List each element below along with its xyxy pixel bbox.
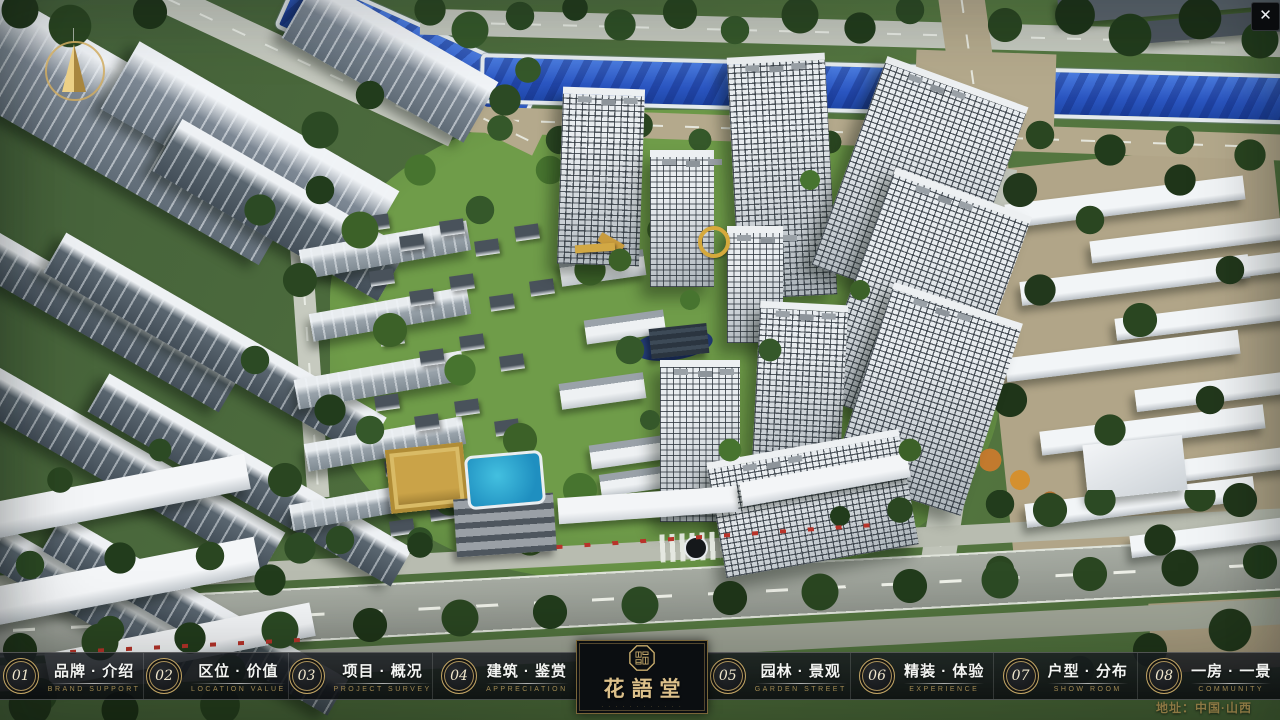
- menu-divider: [904, 683, 984, 684]
- menu-number: 01: [12, 668, 30, 684]
- menu-label-en: APPRECIATION: [486, 686, 568, 693]
- white-building-block: [1082, 435, 1187, 500]
- menu-group-right: 05 园林 · 景观GARDEN STREET 06 精装 · 体验EXPERI…: [707, 653, 1280, 699]
- menu-label-cn: 精装 · 体验: [904, 660, 984, 681]
- residential-tower: [650, 150, 714, 287]
- menu-number-badge: 05: [710, 658, 746, 694]
- menu-item-location-value[interactable]: 02 区位 · 价值LOCATION VALUE: [144, 653, 288, 699]
- compass-arrow-icon: [62, 44, 74, 92]
- close-button[interactable]: ✕: [1251, 2, 1280, 31]
- menu-number-badge: 04: [441, 658, 477, 694]
- menu-label-en: SHOW ROOM: [1054, 686, 1122, 693]
- menu-number: 04: [450, 668, 468, 684]
- menu-number-badge: 07: [1003, 658, 1039, 694]
- menu-label-en: LOCATION VALUE: [191, 686, 286, 693]
- project-name: 花語堂: [604, 673, 688, 703]
- menu-number-badge: 08: [1146, 658, 1182, 694]
- menu-number: 03: [298, 668, 316, 684]
- menu-item-interior-experience[interactable]: 06 精装 · 体验EXPERIENCE: [851, 653, 995, 699]
- menu-label-cn: 一房 · 一景: [1191, 660, 1271, 681]
- menu-label-en: COMMUNITY: [1198, 686, 1264, 693]
- menu-number-badge: 06: [859, 658, 895, 694]
- close-icon: ✕: [1259, 7, 1272, 24]
- menu-label-cn: 户型 · 分布: [1048, 660, 1128, 681]
- seal-icon: [629, 645, 655, 671]
- menu-item-unit-distribution[interactable]: 07 户型 · 分布SHOW ROOM: [994, 653, 1138, 699]
- menu-label-cn: 园林 · 景观: [761, 660, 841, 681]
- menu-group-left: 01 品牌 · 介绍BRAND SUPPORT 02 区位 · 价值LOCATI…: [0, 653, 577, 699]
- menu-divider: [486, 683, 568, 684]
- compass-stem: [73, 28, 74, 42]
- aerial-masterplan-view[interactable]: [0, 0, 1280, 720]
- menu-number-badge: 02: [146, 658, 182, 694]
- menu-divider: [1191, 683, 1271, 684]
- menu-item-garden-landscape[interactable]: 05 园林 · 景观GARDEN STREET: [707, 653, 851, 699]
- compass-arrow-icon: [74, 44, 86, 92]
- menu-item-room-view[interactable]: 08 一房 · 一景COMMUNITY: [1138, 653, 1280, 699]
- menu-divider: [191, 683, 286, 684]
- menu-label-cn: 建筑 · 鉴赏: [487, 660, 567, 681]
- menu-number-badge: 01: [3, 658, 39, 694]
- clubhouse-roof: [649, 323, 710, 359]
- menu-item-project-survey[interactable]: 03 项目 · 概况PROJECT SURVEY: [289, 653, 433, 699]
- project-address: 地址：中国·山西: [1156, 699, 1252, 716]
- presentation-window: ✕ 01 品牌 · 介绍BRAND SUPPORT 02 区位 · 价值LOCA…: [0, 0, 1280, 720]
- menu-item-architecture[interactable]: 04 建筑 · 鉴赏APPRECIATION: [433, 653, 577, 699]
- menu-divider: [48, 683, 141, 684]
- menu-number: 05: [719, 668, 737, 684]
- menu-label-en: GARDEN STREET: [755, 686, 847, 693]
- menu-label-cn: 区位 · 价值: [198, 660, 278, 681]
- menu-number: 06: [868, 668, 886, 684]
- menu-label-en: PROJECT SURVEY: [334, 686, 432, 693]
- gold-landscape-ring: [698, 226, 730, 258]
- menu-number-badge: 03: [289, 658, 325, 694]
- menu-number: 07: [1012, 668, 1030, 684]
- menu-number: 08: [1155, 668, 1173, 684]
- villa: [389, 518, 415, 536]
- swimming-pool: [464, 450, 546, 511]
- menu-number: 02: [155, 668, 173, 684]
- project-tagline: · · · · · · · · · · · ·: [601, 704, 682, 710]
- menu-label-cn: 品牌 · 介绍: [54, 660, 134, 681]
- menu-divider: [1048, 683, 1128, 684]
- project-logo-panel[interactable]: 花語堂 · · · · · · · · · · · ·: [576, 640, 708, 714]
- menu-divider: [755, 683, 847, 684]
- compass-north-indicator: [36, 28, 112, 108]
- menu-divider: [334, 683, 432, 684]
- menu-label-cn: 项目 · 概况: [342, 660, 422, 681]
- menu-item-brand-intro[interactable]: 01 品牌 · 介绍BRAND SUPPORT: [0, 653, 144, 699]
- menu-label-en: EXPERIENCE: [909, 686, 979, 693]
- menu-label-en: BRAND SUPPORT: [48, 686, 141, 693]
